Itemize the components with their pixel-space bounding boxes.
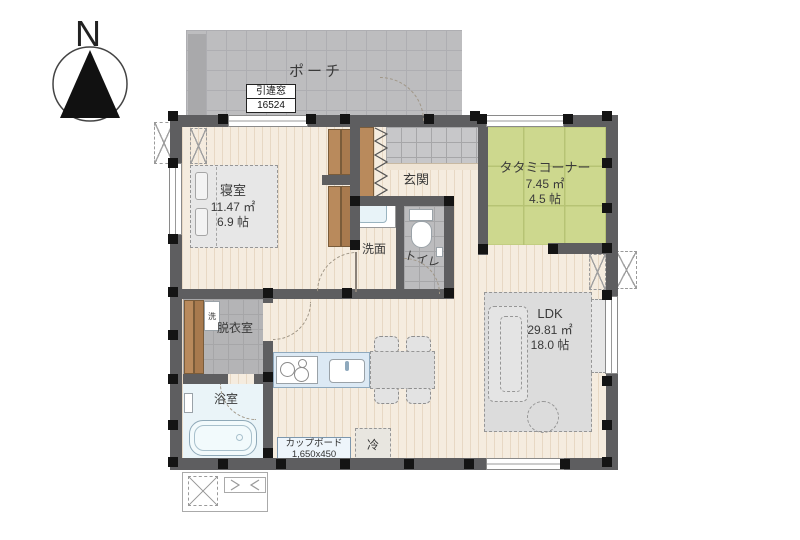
dressing-cabinet (184, 300, 194, 374)
fan-icon (225, 478, 265, 492)
water-heater-tank-marker (188, 476, 218, 506)
shoe-cabinet (358, 127, 374, 203)
outdoor-unit-marker (616, 251, 637, 289)
room-label-ldk: LDK 29.81 ㎡ 18.0 帖 (500, 306, 600, 354)
ac-unit-marker (589, 254, 606, 290)
faucet (345, 361, 349, 371)
room-label-dressing: 脱衣室 (206, 321, 264, 337)
fridge: 冷 (355, 428, 391, 462)
closet-door (328, 129, 341, 175)
window (486, 458, 564, 470)
dining-chair (374, 336, 399, 352)
floor-plan: N ポーチ 引違窓 16524 洗 (0, 0, 800, 540)
wall (350, 127, 360, 250)
dining-table (370, 351, 435, 389)
burner (294, 367, 309, 382)
wall (350, 196, 454, 206)
bath-faucet (184, 393, 193, 413)
heat-pump-unit (224, 477, 266, 493)
dressing-cabinet (194, 300, 204, 374)
wall (444, 206, 454, 299)
entrance-doma (386, 127, 478, 165)
bathtub-inner (194, 425, 252, 451)
window (605, 296, 618, 374)
north-arrow-icon: N (28, 8, 152, 124)
wall (183, 374, 228, 384)
toilet-bowl (411, 221, 432, 248)
room-label-bath: 浴室 (202, 392, 250, 408)
window-tag-size: 16524 (246, 98, 296, 113)
porch-pillar (188, 34, 206, 117)
room-label-bedroom: 寝室 11.47 ㎡ 6.9 帖 (173, 183, 293, 231)
door-leaf (355, 252, 357, 292)
window (486, 115, 564, 127)
folding-door-icon (374, 127, 388, 203)
bath-drain (236, 434, 243, 441)
ac-unit-marker (190, 128, 207, 164)
window (228, 115, 308, 127)
room-label-entrance: 玄関 (386, 172, 446, 189)
toilet-tank (409, 209, 433, 221)
entrance-step (386, 163, 478, 170)
burner (298, 359, 307, 368)
closet-door (328, 186, 341, 247)
dining-chair (406, 388, 431, 404)
room-label-tatami: タタミコーナー 7.45 ㎡ 4.5 帖 (485, 160, 605, 208)
dining-chair (374, 388, 399, 404)
round-table (527, 401, 559, 433)
window-tag-name: 引違窓 (246, 84, 296, 99)
burner (280, 362, 295, 377)
porch-label: ポーチ (266, 62, 366, 82)
wall (263, 341, 273, 458)
dining-chair (406, 336, 431, 352)
